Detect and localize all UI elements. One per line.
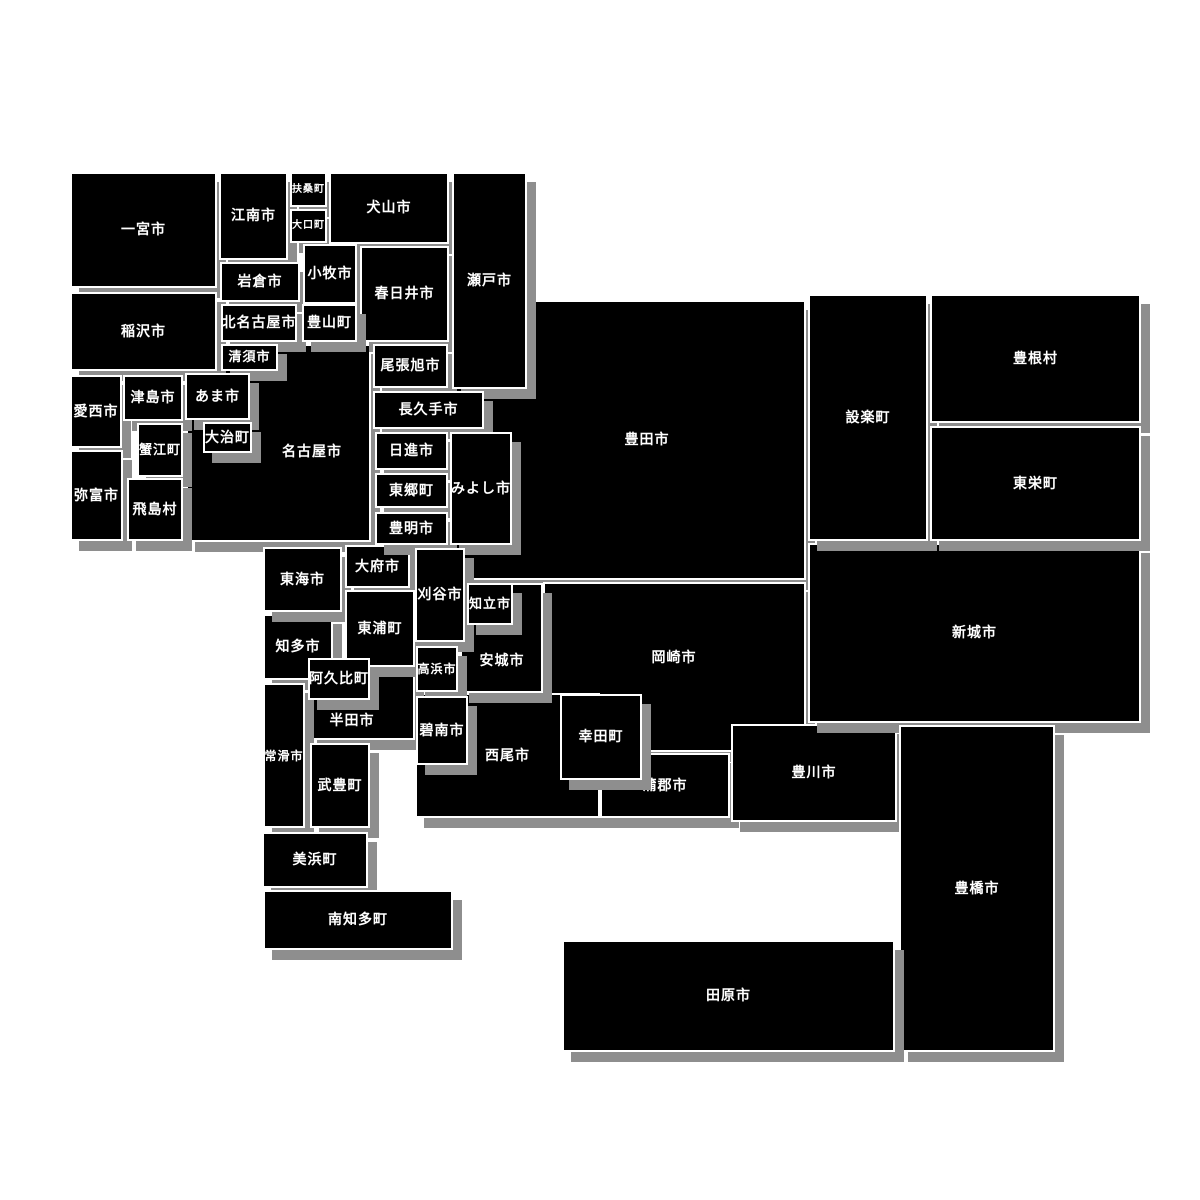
tile-ichinomiya[interactable]: 一宮市: [70, 172, 217, 288]
tile-toei[interactable]: 東栄町: [930, 426, 1141, 541]
tile-label-konan: 江南市: [231, 209, 276, 223]
tile-mihama[interactable]: 美浜町: [262, 832, 368, 888]
tile-label-shitara: 設楽町: [846, 411, 891, 425]
tile-label-okazaki: 岡崎市: [652, 651, 697, 665]
tile-minamichita[interactable]: 南知多町: [263, 890, 453, 950]
tile-label-nishio: 西尾市: [485, 749, 530, 763]
tile-label-komaki: 小牧市: [308, 267, 353, 281]
tile-kiyosu[interactable]: 清須市: [221, 344, 278, 371]
tile-label-nisshin: 日進市: [389, 444, 434, 458]
tile-taketoyo[interactable]: 武豊町: [310, 743, 370, 828]
tile-hekinan[interactable]: 碧南市: [416, 696, 468, 765]
tile-konan[interactable]: 江南市: [219, 172, 288, 260]
tile-label-togo: 東郷町: [389, 484, 434, 498]
tile-tobishima[interactable]: 飛島村: [127, 478, 183, 541]
tile-owariasahi[interactable]: 尾張旭市: [373, 344, 448, 388]
tile-seto[interactable]: 瀬戸市: [452, 172, 527, 389]
tile-aisai[interactable]: 愛西市: [70, 375, 122, 448]
tile-kota[interactable]: 幸田町: [560, 694, 642, 780]
tile-iwakura[interactable]: 岩倉市: [220, 262, 300, 302]
tile-shitara[interactable]: 設楽町: [808, 294, 928, 541]
tile-oharu[interactable]: 大治町: [203, 422, 252, 453]
tile-label-tahara: 田原市: [706, 989, 751, 1003]
tile-label-gamagori: 蒲郡市: [643, 779, 688, 793]
tile-nisshin[interactable]: 日進市: [375, 432, 448, 470]
tile-label-tokai: 東海市: [280, 573, 325, 587]
tile-higashiura[interactable]: 東浦町: [345, 590, 415, 667]
tile-label-aisai: 愛西市: [74, 405, 119, 419]
tile-label-kariya: 刈谷市: [418, 588, 463, 602]
tile-label-takahama: 高浜市: [418, 663, 457, 675]
tile-toyoyama[interactable]: 豊山町: [302, 304, 357, 342]
tile-inuyama[interactable]: 犬山市: [329, 172, 449, 244]
tile-obu[interactable]: 大府市: [345, 545, 410, 588]
tile-label-kitanagoya: 北名古屋市: [222, 316, 297, 330]
tile-label-nagoya: 名古屋市: [282, 445, 342, 459]
tile-chiryu[interactable]: 知立市: [467, 583, 513, 625]
tile-label-toei: 東栄町: [1013, 477, 1058, 491]
tile-label-kanie: 蟹江町: [139, 444, 181, 457]
tile-toyone[interactable]: 豊根村: [930, 294, 1141, 423]
tile-label-toyota: 豊田市: [625, 433, 670, 447]
tile-label-toyokawa: 豊川市: [792, 766, 837, 780]
tile-oguchi[interactable]: 大口町: [290, 209, 327, 243]
tile-kitanagoya[interactable]: 北名古屋市: [221, 304, 297, 342]
tile-label-chiryu: 知立市: [469, 598, 511, 611]
tile-label-ama: あま市: [195, 390, 240, 404]
tile-label-minamichita: 南知多町: [328, 913, 388, 927]
tile-tokai[interactable]: 東海市: [263, 547, 342, 612]
tile-label-shinshiro: 新城市: [952, 626, 997, 640]
tile-label-toyone: 豊根村: [1013, 352, 1058, 366]
tile-kanie[interactable]: 蟹江町: [137, 423, 183, 477]
tile-label-anjo: 安城市: [480, 654, 525, 668]
tile-komaki[interactable]: 小牧市: [303, 244, 357, 304]
tile-nagakute[interactable]: 長久手市: [373, 391, 484, 429]
tile-label-fuso: 扶桑町: [292, 185, 325, 195]
tile-label-miyoshi: みよし市: [451, 482, 511, 496]
tile-toyokawa[interactable]: 豊川市: [731, 724, 897, 822]
tile-kariya[interactable]: 刈谷市: [415, 548, 465, 642]
tile-label-agui: 阿久比町: [309, 672, 369, 686]
tile-label-inazawa: 稲沢市: [121, 325, 166, 339]
tile-label-toyoyama: 豊山町: [307, 316, 352, 330]
tile-miyoshi[interactable]: みよし市: [450, 432, 512, 545]
tile-label-kiyosu: 清須市: [228, 351, 270, 364]
tile-agui[interactable]: 阿久比町: [308, 658, 370, 700]
tile-label-kasugai: 春日井市: [375, 287, 435, 301]
tile-label-tsushima: 津島市: [131, 391, 176, 405]
tile-label-inuyama: 犬山市: [367, 201, 412, 215]
tile-label-toyohashi: 豊橋市: [955, 882, 1000, 896]
tile-label-seto: 瀬戸市: [467, 274, 512, 288]
tile-label-iwakura: 岩倉市: [238, 275, 283, 289]
tile-inazawa[interactable]: 稲沢市: [70, 292, 217, 371]
tile-label-oharu: 大治町: [205, 431, 250, 445]
tile-label-kota: 幸田町: [579, 730, 624, 744]
tile-label-higashiura: 東浦町: [358, 622, 403, 636]
tile-label-toyoake: 豊明市: [389, 522, 434, 536]
tile-label-ichinomiya: 一宮市: [121, 223, 166, 237]
tile-label-obu: 大府市: [355, 560, 400, 574]
tile-label-yatomi: 弥富市: [74, 489, 119, 503]
tile-label-chita: 知多市: [276, 640, 321, 654]
tile-toyohashi[interactable]: 豊橋市: [899, 725, 1055, 1052]
tile-shinshiro[interactable]: 新城市: [808, 543, 1141, 723]
tile-label-hekinan: 碧南市: [420, 724, 465, 738]
tile-tokoname[interactable]: 常滑市: [263, 683, 305, 828]
tile-kasugai[interactable]: 春日井市: [360, 246, 449, 342]
tile-label-nagakute: 長久手市: [399, 403, 459, 417]
tile-label-oguchi: 大口町: [292, 221, 325, 231]
tile-ama[interactable]: あま市: [185, 373, 250, 420]
tile-label-owariasahi: 尾張旭市: [381, 359, 441, 373]
tile-takahama[interactable]: 高浜市: [416, 646, 458, 692]
aichi-municipality-tile-map: 名古屋市 豊田市 岡崎市 西尾市 蒲郡市 豊川市 新城市 設楽町 豊根村 東栄町…: [0, 0, 1200, 1200]
tile-fuso[interactable]: 扶桑町: [290, 172, 327, 207]
tile-label-mihama: 美浜町: [293, 853, 338, 867]
tile-tahara[interactable]: 田原市: [562, 940, 895, 1052]
tile-label-tobishima: 飛島村: [133, 503, 178, 517]
tile-tsushima[interactable]: 津島市: [123, 375, 183, 421]
tile-toyoake[interactable]: 豊明市: [375, 512, 448, 545]
tile-label-tokoname: 常滑市: [265, 750, 304, 762]
tile-togo[interactable]: 東郷町: [375, 473, 448, 508]
tile-yatomi[interactable]: 弥富市: [70, 450, 123, 541]
tile-label-taketoyo: 武豊町: [318, 779, 363, 793]
tile-label-handa: 半田市: [330, 714, 375, 728]
